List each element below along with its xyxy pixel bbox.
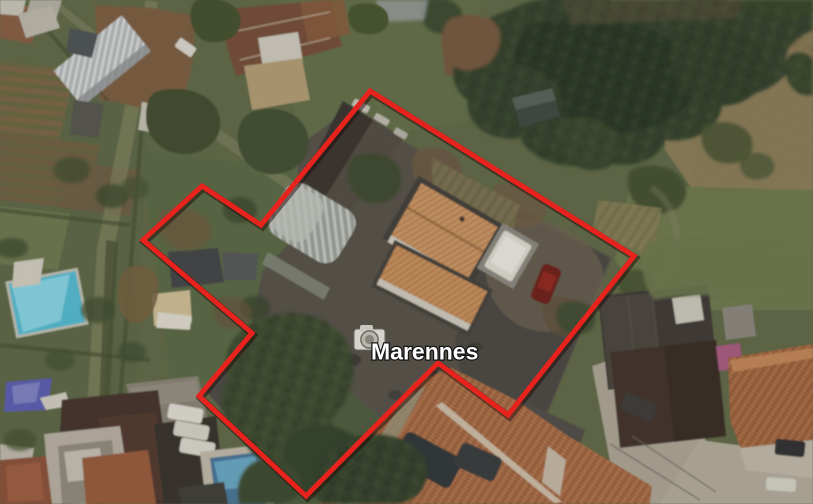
svg-text:Marennes: Marennes: [371, 339, 478, 365]
